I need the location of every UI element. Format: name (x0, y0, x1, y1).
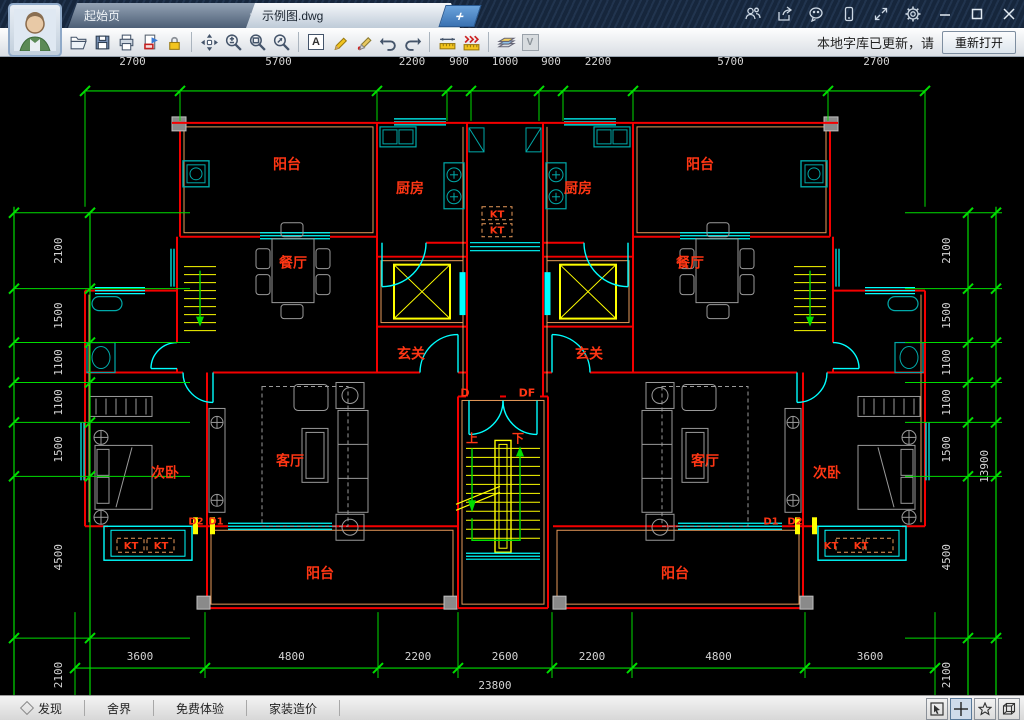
plan-text: 2100 (52, 662, 65, 688)
plan-text: 1000 (492, 57, 518, 68)
plan-text: 阳台 (273, 156, 301, 173)
plan-text: 阳台 (686, 156, 714, 173)
share-icon[interactable] (776, 5, 794, 23)
plan-text: 4800 (278, 650, 304, 663)
zoom-button[interactable] (221, 30, 245, 54)
undo-button[interactable] (376, 30, 400, 54)
tab-label: 示例图.dwg (262, 7, 323, 24)
measure-continuous-button[interactable] (459, 30, 483, 54)
wechat-icon[interactable] (808, 5, 826, 23)
tab-start-page[interactable]: 起始页 × (68, 3, 266, 28)
layers-button[interactable] (494, 30, 518, 54)
plan-text: 2600 (492, 650, 518, 663)
reopen-button[interactable]: 重新打开 (942, 31, 1016, 54)
plan-text: 1500 (940, 302, 953, 328)
pan-button[interactable] (197, 30, 221, 54)
minimize-icon[interactable] (936, 5, 954, 23)
plan-text: 厨房 (396, 180, 424, 197)
plan-text: 2200 (399, 57, 425, 68)
plan-text: 次卧 (151, 464, 179, 481)
tab-drawing[interactable]: 示例图.dwg × (246, 3, 460, 28)
tab-label: 起始页 (84, 7, 120, 24)
plan-text: 客厅 (275, 452, 304, 469)
plan-text: 3600 (127, 650, 153, 663)
plan-text: 下 (512, 431, 524, 445)
plan-text: 1100 (940, 389, 953, 415)
save-button[interactable] (90, 30, 114, 54)
settings-icon[interactable] (904, 5, 922, 23)
new-tab-button[interactable]: + (438, 5, 481, 27)
plan-text: 1100 (940, 349, 953, 375)
plan-text: 客厅 (690, 452, 719, 469)
plan-text: DF (519, 386, 536, 399)
lock-button[interactable] (162, 30, 186, 54)
statusbar-item-discover[interactable]: 发现 (0, 700, 85, 716)
plan-text: 餐厅 (278, 255, 307, 272)
plan-text: 2100 (52, 237, 65, 263)
statusbar-item-free-trial[interactable]: 免费体验 (154, 700, 247, 716)
plan-text: 次卧 (813, 464, 841, 481)
print-button[interactable] (114, 30, 138, 54)
plan-text: 玄关 (575, 346, 603, 363)
mobile-icon[interactable] (840, 5, 858, 23)
text-tool-button[interactable]: A (304, 30, 328, 54)
plan-text: 4500 (940, 544, 953, 570)
toolbar: A V 本地字库已更新，请 重新打开 (0, 28, 1024, 57)
statusbar-item-shejie[interactable]: 舍界 (85, 700, 154, 716)
font-update-notice: 本地字库已更新，请 (817, 33, 934, 52)
plan-text: 2700 (863, 57, 889, 68)
statusbar: 发现 舍界 免费体验 家装造价 (0, 695, 1024, 720)
plan-text: KT (824, 541, 839, 552)
statusbar-item-decor-pricing[interactable]: 家装造价 (247, 700, 340, 716)
plan-text: D (460, 386, 469, 399)
plan-text: 阳台 (306, 565, 334, 582)
drawing-area: 2700570022009001000900220057002700360048… (0, 57, 1024, 695)
plan-text: 2200 (579, 650, 605, 663)
crosshair-mode-icon[interactable] (950, 698, 972, 720)
plan-text: 900 (541, 57, 561, 68)
zoom-extents-button[interactable] (269, 30, 293, 54)
titlebar: 起始页 × 示例图.dwg × + (0, 0, 1024, 28)
plan-text: KT (490, 210, 505, 221)
export-pdf-button[interactable] (138, 30, 162, 54)
plan-text: 1100 (52, 349, 65, 375)
maximize-icon[interactable] (968, 5, 986, 23)
plan-text: KT (490, 226, 505, 237)
zoom-window-button[interactable] (245, 30, 269, 54)
avatar-person-icon (14, 9, 56, 51)
plan-text: D2 (188, 516, 203, 527)
select-mode-icon[interactable] (926, 698, 948, 720)
plan-text: 2100 (940, 662, 953, 688)
plan-text: 2200 (405, 650, 431, 663)
plan-text: 2100 (940, 237, 953, 263)
pencil-tool-button[interactable] (328, 30, 352, 54)
plan-text: D2 (787, 516, 802, 527)
favorite-icon[interactable] (974, 698, 996, 720)
close-icon[interactable] (1000, 5, 1018, 23)
marker-tool-button[interactable] (352, 30, 376, 54)
plan-text: 玄关 (397, 346, 425, 363)
app-window: 起始页 × 示例图.dwg × + A (0, 0, 1024, 720)
plan-text: 1500 (52, 302, 65, 328)
plan-text: 1500 (52, 436, 65, 462)
plan-text: 上 (466, 430, 478, 445)
plan-text: 厨房 (564, 180, 592, 197)
plan-text: 5700 (265, 57, 291, 68)
view-v-button[interactable]: V (518, 30, 542, 54)
plan-text: 餐厅 (675, 255, 704, 272)
view-3d-icon[interactable] (998, 698, 1020, 720)
plan-text: 5700 (717, 57, 743, 68)
plan-text: 2200 (585, 57, 611, 68)
plan-text: 900 (449, 57, 469, 68)
plan-text: KT (854, 541, 869, 552)
plan-text: D1 (763, 516, 778, 527)
plan-text: KT (154, 541, 169, 552)
open-button[interactable] (66, 30, 90, 54)
text-tool-letter: A (308, 34, 324, 50)
plan-text: 4500 (52, 544, 65, 570)
user-avatar[interactable] (8, 3, 62, 57)
contacts-icon[interactable] (744, 5, 762, 23)
plan-text: 阳台 (661, 565, 689, 582)
plan-text: 23800 (478, 679, 511, 692)
fullscreen-icon[interactable] (872, 5, 890, 23)
discover-icon (20, 701, 34, 715)
measure-button[interactable] (435, 30, 459, 54)
plan-text: 1500 (940, 436, 953, 462)
plan-text: 2700 (119, 57, 145, 68)
view-v-letter: V (522, 34, 539, 51)
plan-text: 1100 (52, 389, 65, 415)
plan-text: 13900 (978, 450, 991, 483)
drawing-canvas[interactable]: 2700570022009001000900220057002700360048… (0, 57, 1024, 695)
redo-button[interactable] (400, 30, 424, 54)
plan-text: 3600 (857, 650, 883, 663)
plan-text: KT (124, 541, 139, 552)
plan-text: D1 (208, 516, 223, 527)
plan-text: 4800 (705, 650, 731, 663)
